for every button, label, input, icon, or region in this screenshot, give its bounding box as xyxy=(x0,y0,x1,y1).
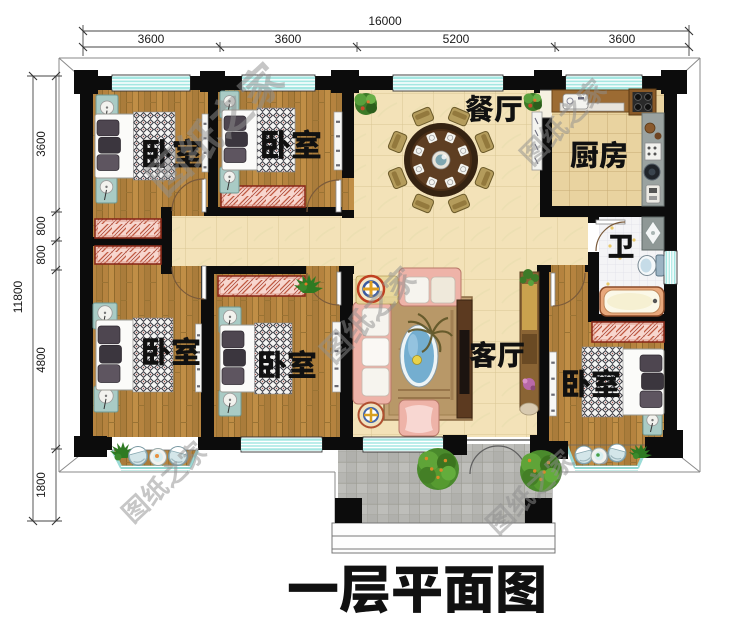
svg-text:3600: 3600 xyxy=(36,131,48,157)
svg-text:800: 800 xyxy=(36,245,48,264)
svg-text:1800: 1800 xyxy=(36,472,48,498)
svg-text:3600: 3600 xyxy=(138,32,165,46)
svg-text:3600: 3600 xyxy=(609,32,636,46)
svg-text:800: 800 xyxy=(36,216,48,235)
svg-text:3600: 3600 xyxy=(275,32,302,46)
svg-text:4800: 4800 xyxy=(36,347,48,373)
svg-text:5200: 5200 xyxy=(443,32,470,46)
svg-text:16000: 16000 xyxy=(368,14,402,28)
svg-text:11800: 11800 xyxy=(11,280,25,313)
